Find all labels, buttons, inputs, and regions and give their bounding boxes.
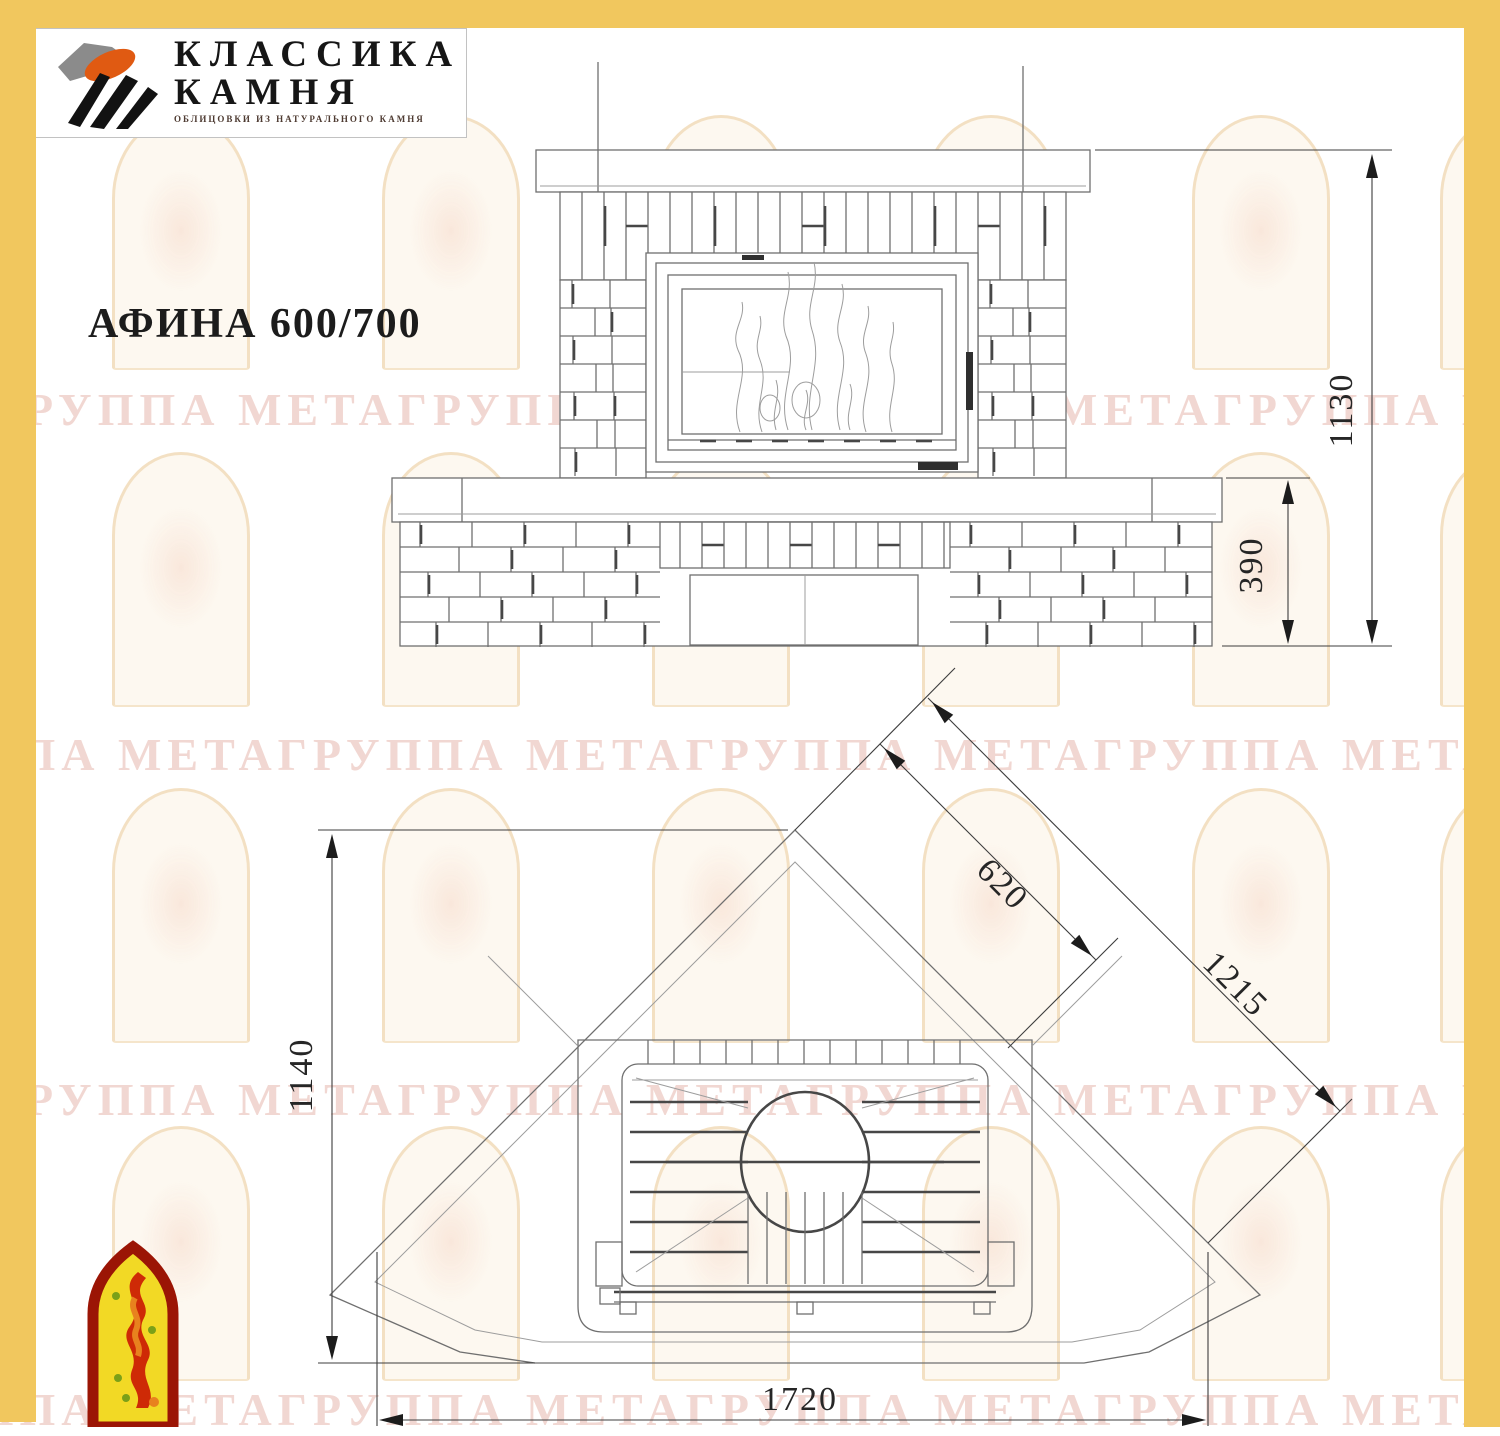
logo-tagline: ОБЛИЦОВКИ ИЗ НАТУРАЛЬНОГО КАМНЯ xyxy=(174,114,461,124)
dim-outer-diagonal: 1215 xyxy=(1195,945,1275,1025)
dim-plan-width: 1720 xyxy=(762,1381,838,1418)
logo-line1: КЛАССИКА xyxy=(174,35,461,75)
right-border-bar xyxy=(1464,0,1500,1427)
logo-line2: КАМНЯ xyxy=(174,75,461,111)
flame-arch-icon xyxy=(86,1238,180,1427)
company-logo: КЛАССИКА КАМНЯ ОБЛИЦОВКИ ИЗ НАТУРАЛЬНОГО… xyxy=(35,28,467,138)
stone-logo-icon xyxy=(54,37,166,129)
dim-plan-depth: 1140 xyxy=(283,1038,320,1113)
plan-view xyxy=(330,830,1260,1363)
dim-front-height: 1130 xyxy=(1323,373,1360,448)
page-title: АФИНА 600/700 xyxy=(88,300,422,348)
technical-drawing: 1130 390 1140 1720 620 1215 xyxy=(0,0,1500,1427)
left-border-bar xyxy=(0,0,36,1422)
dim-base-height: 390 xyxy=(1233,537,1270,594)
dim-inner-diagonal: 620 xyxy=(969,851,1035,917)
top-border-bar xyxy=(0,0,1500,28)
